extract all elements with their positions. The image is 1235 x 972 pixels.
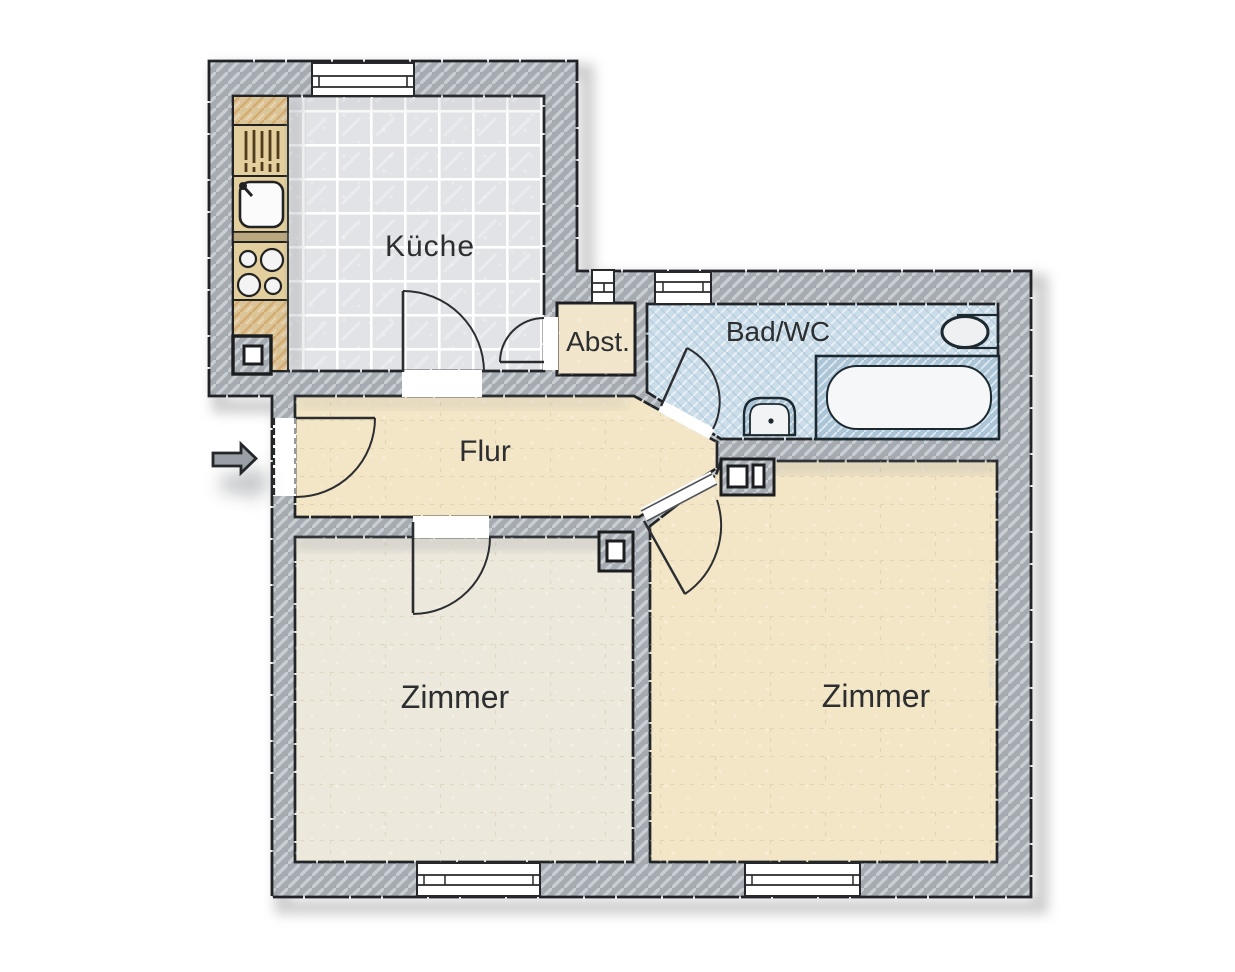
- svg-text:Abst.: Abst.: [566, 326, 630, 357]
- svg-text:Bad/WC: Bad/WC: [726, 316, 830, 347]
- svg-text:www.grundrissprofi.com: www.grundrissprofi.com: [986, 582, 997, 689]
- svg-text:Zimmer: Zimmer: [401, 679, 510, 715]
- svg-text:Küche: Küche: [385, 230, 475, 263]
- svg-text:Zimmer: Zimmer: [822, 678, 931, 714]
- svg-text:Flur: Flur: [459, 435, 511, 468]
